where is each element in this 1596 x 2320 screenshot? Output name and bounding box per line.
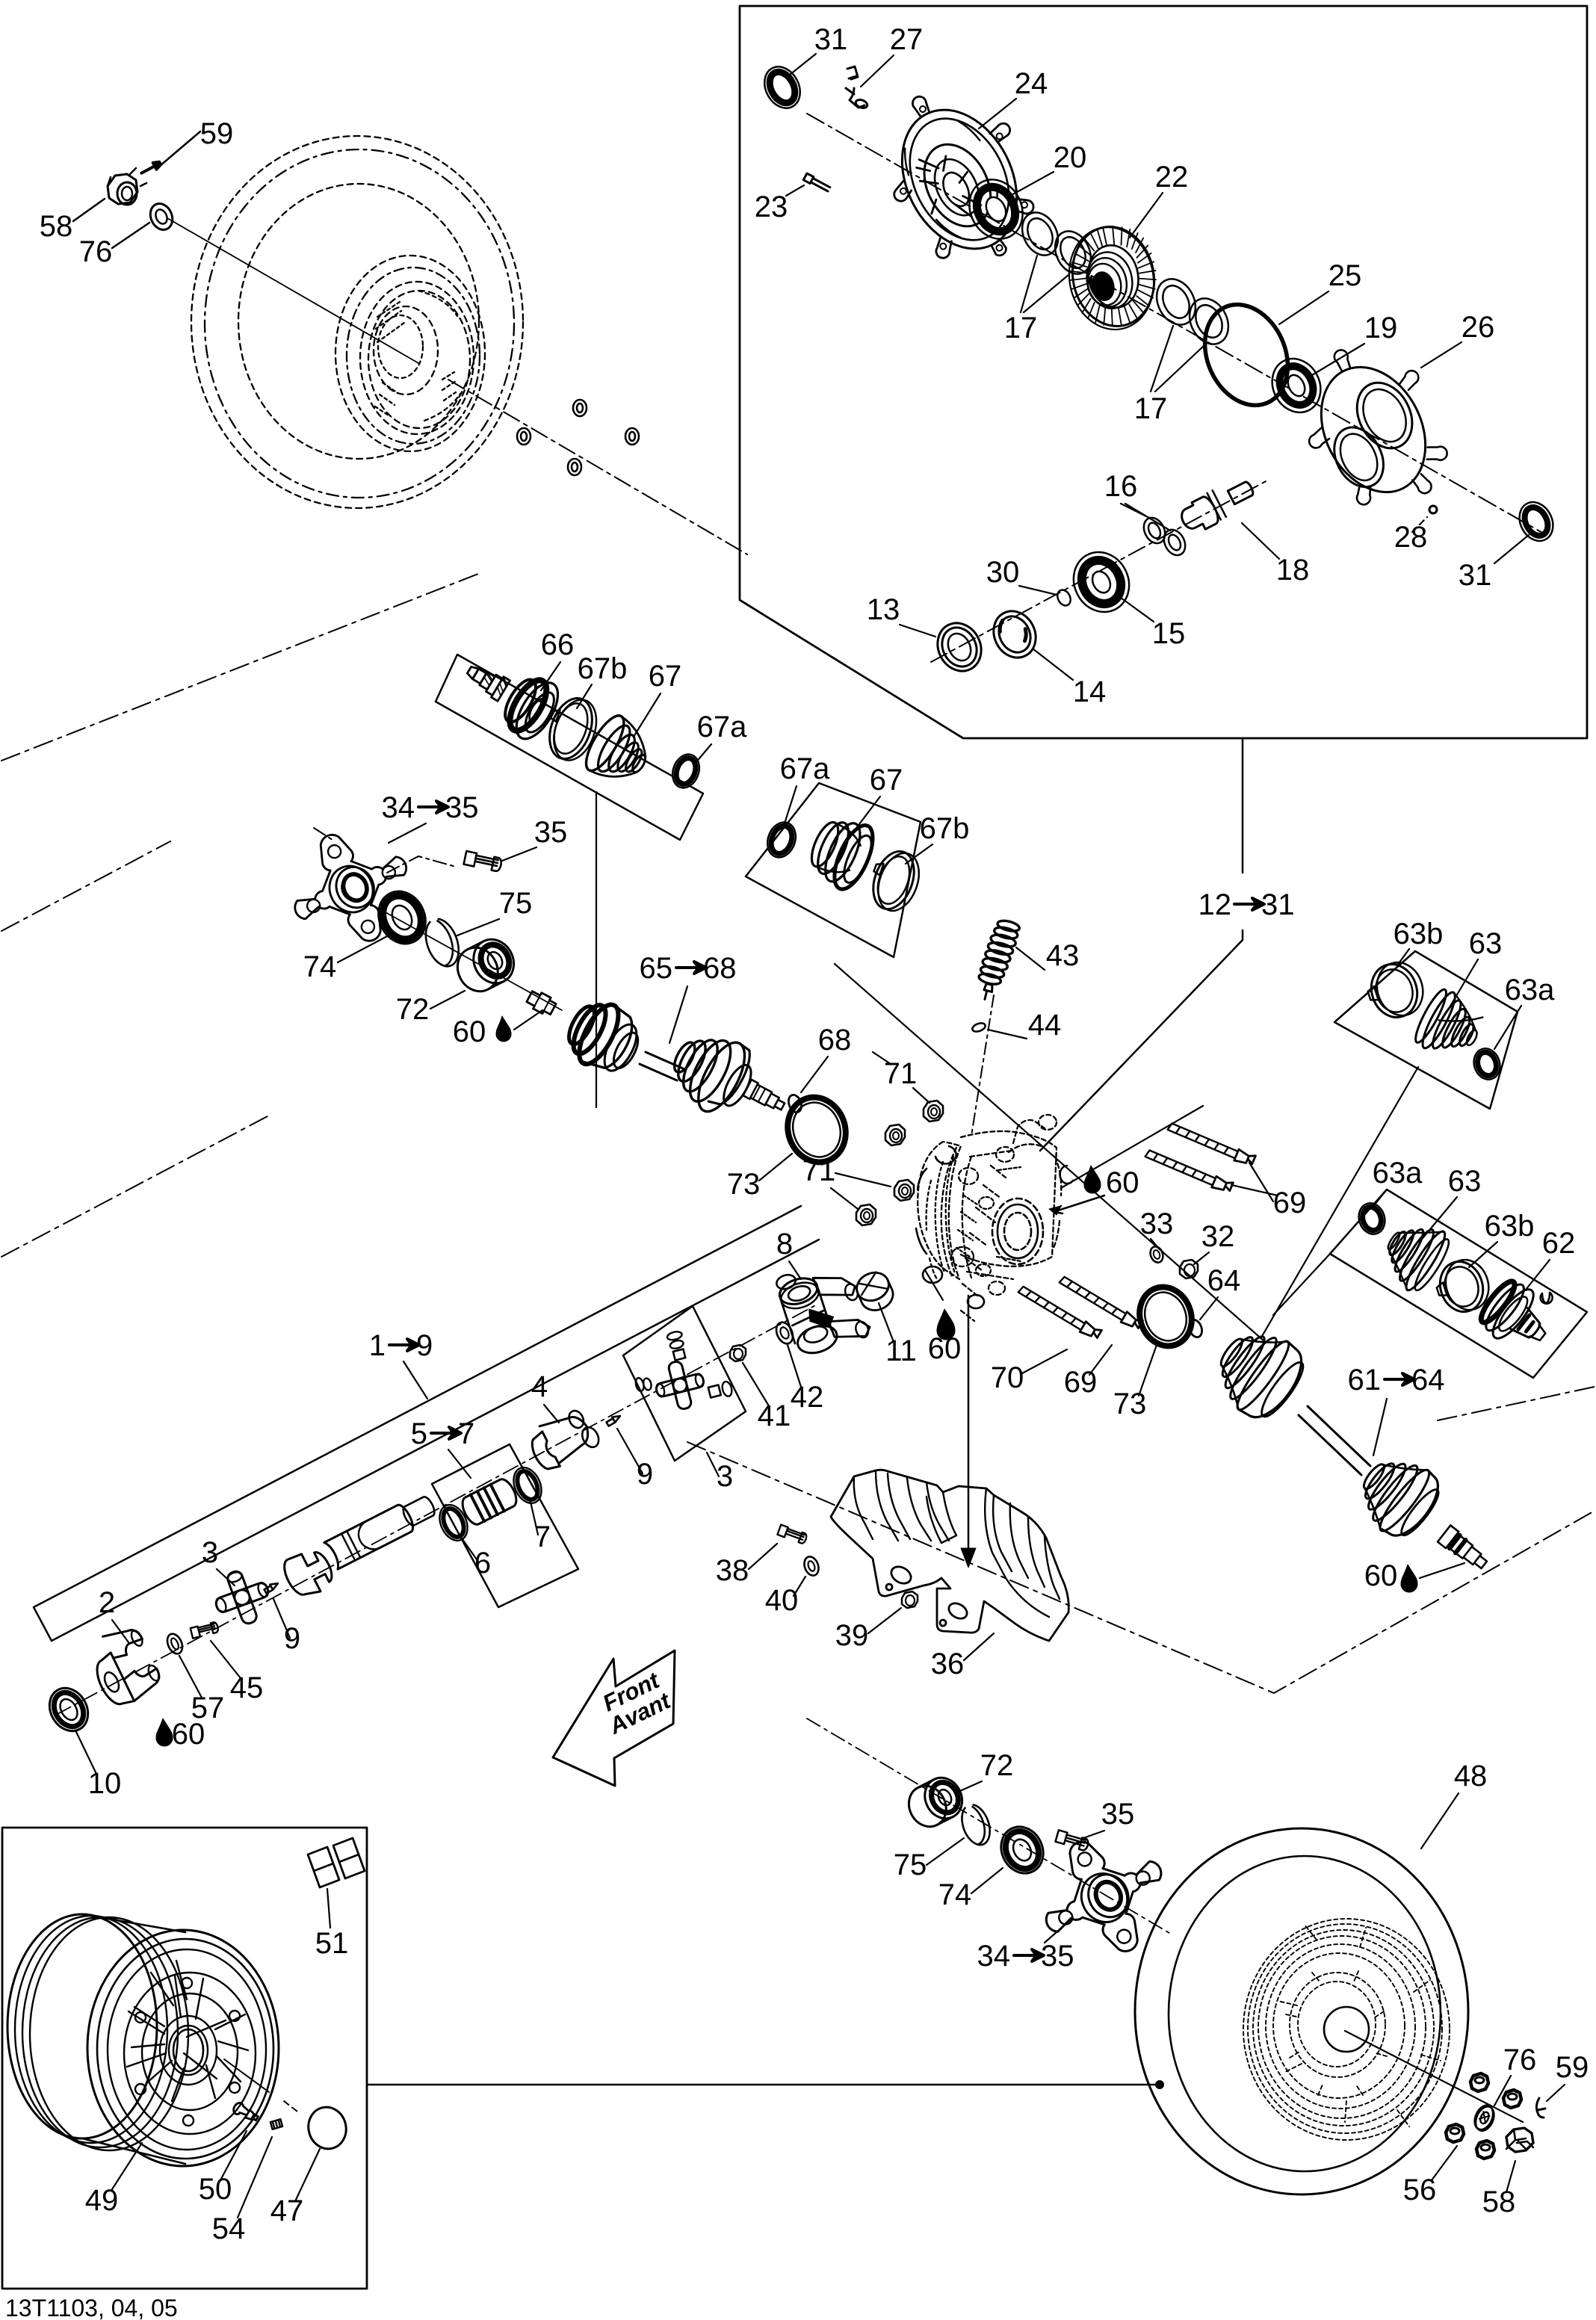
- svg-text:32: 32: [1201, 1220, 1235, 1253]
- svg-text:35: 35: [445, 791, 479, 824]
- svg-text:61: 61: [1348, 1364, 1382, 1396]
- svg-text:45: 45: [230, 1671, 264, 1704]
- svg-text:57: 57: [191, 1692, 225, 1724]
- svg-text:19: 19: [1364, 312, 1398, 344]
- svg-text:60: 60: [453, 1015, 486, 1048]
- svg-text:17: 17: [1134, 392, 1168, 425]
- svg-text:69: 69: [1273, 1187, 1307, 1219]
- svg-text:42: 42: [791, 1381, 824, 1414]
- svg-text:75: 75: [499, 887, 533, 920]
- svg-text:64: 64: [1207, 1264, 1241, 1297]
- svg-text:63b: 63b: [1394, 918, 1444, 950]
- svg-text:34: 34: [382, 791, 415, 824]
- svg-text:62: 62: [1542, 1227, 1576, 1260]
- svg-text:6: 6: [474, 1547, 491, 1580]
- svg-text:74: 74: [303, 950, 337, 983]
- svg-text:48: 48: [1454, 1760, 1488, 1792]
- svg-text:10: 10: [88, 1767, 122, 1800]
- svg-text:58: 58: [1482, 2186, 1516, 2218]
- svg-text:74: 74: [938, 1878, 972, 1911]
- svg-text:23: 23: [755, 191, 788, 223]
- svg-text:76: 76: [1503, 2044, 1537, 2076]
- svg-text:75: 75: [894, 1849, 927, 1881]
- svg-text:47: 47: [270, 2194, 304, 2227]
- svg-text:38: 38: [716, 1554, 749, 1587]
- svg-text:51: 51: [315, 1927, 349, 1960]
- svg-text:1: 1: [369, 1329, 386, 1362]
- svg-text:68: 68: [703, 952, 737, 985]
- svg-text:12: 12: [1198, 888, 1232, 921]
- svg-text:28: 28: [1394, 521, 1428, 554]
- svg-text:31: 31: [814, 23, 848, 56]
- svg-text:25: 25: [1329, 259, 1362, 292]
- svg-text:9: 9: [284, 1622, 300, 1655]
- svg-text:60: 60: [1364, 1559, 1398, 1592]
- svg-text:20: 20: [1054, 141, 1087, 174]
- svg-text:17: 17: [1004, 312, 1038, 344]
- svg-text:49: 49: [85, 2184, 119, 2217]
- svg-text:2: 2: [99, 1586, 115, 1619]
- svg-text:64: 64: [1411, 1364, 1445, 1396]
- svg-text:63a: 63a: [1373, 1157, 1423, 1190]
- svg-text:8: 8: [776, 1228, 793, 1260]
- svg-text:72: 72: [396, 993, 430, 1026]
- svg-text:13T1103, 04, 05: 13T1103, 04, 05: [5, 2295, 178, 2320]
- svg-text:71: 71: [802, 1154, 836, 1187]
- svg-text:58: 58: [40, 210, 73, 243]
- svg-text:11: 11: [885, 1334, 917, 1367]
- svg-text:24: 24: [1015, 67, 1048, 100]
- svg-text:73: 73: [727, 1168, 761, 1201]
- svg-text:67a: 67a: [697, 711, 747, 743]
- svg-text:7: 7: [458, 1417, 474, 1450]
- svg-text:56: 56: [1403, 2174, 1437, 2206]
- svg-text:67a: 67a: [780, 752, 830, 785]
- svg-text:15: 15: [1152, 617, 1186, 650]
- svg-text:68: 68: [818, 1024, 852, 1057]
- svg-text:31: 31: [1459, 559, 1492, 592]
- svg-text:3: 3: [202, 1536, 218, 1569]
- svg-text:50: 50: [199, 2173, 232, 2206]
- svg-text:63a: 63a: [1505, 974, 1555, 1006]
- svg-text:67: 67: [649, 660, 682, 693]
- svg-text:13: 13: [867, 593, 900, 626]
- svg-text:67b: 67b: [578, 652, 628, 685]
- svg-text:9: 9: [637, 1458, 653, 1491]
- svg-text:27: 27: [890, 23, 924, 56]
- svg-text:22: 22: [1155, 161, 1189, 194]
- svg-text:5: 5: [411, 1417, 427, 1450]
- svg-text:35: 35: [534, 816, 568, 849]
- svg-text:65: 65: [640, 952, 673, 985]
- svg-text:67b: 67b: [920, 812, 970, 845]
- svg-text:33: 33: [1140, 1207, 1174, 1240]
- svg-text:43: 43: [1046, 939, 1080, 972]
- svg-text:26: 26: [1462, 311, 1495, 344]
- svg-text:54: 54: [212, 2212, 246, 2245]
- svg-text:41: 41: [758, 1399, 791, 1432]
- svg-text:35: 35: [1041, 1940, 1074, 1973]
- svg-text:30: 30: [986, 556, 1020, 589]
- svg-text:31: 31: [1261, 888, 1295, 921]
- svg-text:59: 59: [1556, 2051, 1589, 2084]
- svg-text:18: 18: [1276, 554, 1310, 587]
- svg-text:44: 44: [1028, 1009, 1062, 1042]
- svg-text:40: 40: [765, 1584, 799, 1617]
- svg-text:73: 73: [1113, 1388, 1147, 1420]
- svg-text:63: 63: [1448, 1165, 1482, 1198]
- svg-text:35: 35: [1101, 1798, 1135, 1831]
- svg-text:60: 60: [1106, 1166, 1139, 1199]
- svg-text:60: 60: [928, 1332, 962, 1365]
- svg-text:16: 16: [1104, 470, 1138, 503]
- svg-text:76: 76: [79, 235, 113, 268]
- svg-text:4: 4: [531, 1370, 548, 1403]
- svg-text:70: 70: [991, 1361, 1024, 1394]
- svg-text:14: 14: [1073, 675, 1107, 708]
- svg-text:9: 9: [416, 1329, 433, 1362]
- svg-text:63b: 63b: [1485, 1210, 1535, 1243]
- svg-text:34: 34: [977, 1940, 1011, 1973]
- svg-text:36: 36: [931, 1648, 965, 1680]
- svg-text:67: 67: [870, 764, 903, 796]
- svg-text:59: 59: [200, 117, 234, 150]
- svg-text:63: 63: [1469, 927, 1503, 960]
- svg-text:72: 72: [980, 1749, 1014, 1782]
- svg-text:39: 39: [835, 1619, 869, 1652]
- svg-text:66: 66: [541, 628, 575, 661]
